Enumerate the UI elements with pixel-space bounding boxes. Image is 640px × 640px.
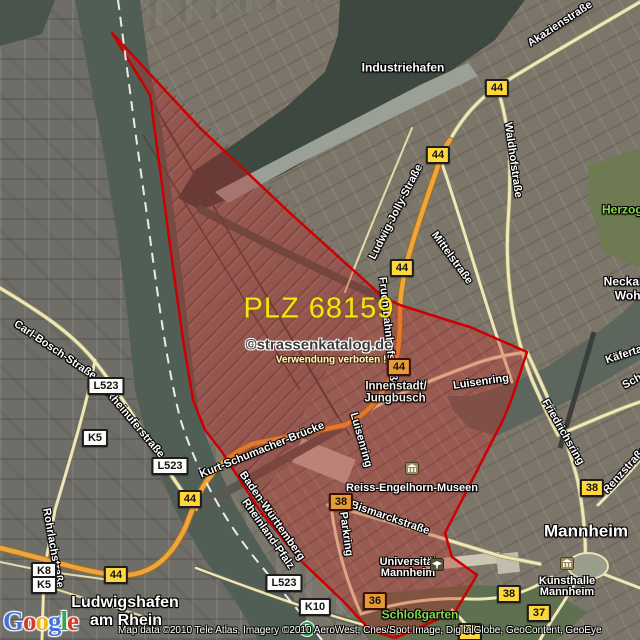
poi-label-reiss-engelhorn-museen: Reiss-Engelhorn-Museen <box>346 482 478 494</box>
place-label-herzogenriedpark: Herzogenriedpark <box>602 203 640 216</box>
city-label-mannheim: Mannheim <box>544 523 628 542</box>
route-badge-44: 44 <box>390 259 414 277</box>
logo-letter: G <box>3 606 23 636</box>
route-badge-44: 44 <box>387 358 411 376</box>
logo-letter: o <box>23 606 36 636</box>
route-badge-l523: L523 <box>151 457 188 475</box>
map-attribution: Map data ©2010 Tele Atlas, Imagery ©2010… <box>118 625 602 636</box>
watermark-line1: ©strassenkatalog.de <box>246 337 393 354</box>
logo-letter: o <box>36 606 49 636</box>
route-badge-k5: K5 <box>82 429 108 447</box>
logo-letter: e <box>67 606 78 636</box>
route-badge-44: 44 <box>178 490 202 508</box>
route-badge-k10: K10 <box>299 598 331 616</box>
route-badge-44: 44 <box>485 79 509 97</box>
route-badge-k5: K5 <box>31 576 57 594</box>
route-badge-44: 44 <box>104 566 128 584</box>
place-label-innenstadt: Innenstadt/ <box>365 381 426 394</box>
museum-icon[interactable] <box>560 557 574 575</box>
place-label-schlossgarten: Schloßgarten <box>382 608 459 621</box>
route-badge-37: 37 <box>527 604 551 622</box>
poi-label-universitaet-2: Mannheim <box>381 567 435 579</box>
place-label-neckarstadt: Neckarstadt <box>604 275 640 288</box>
poi-label-kunsthalle-2: Mannheim <box>540 586 594 598</box>
route-badge-l523: L523 <box>265 574 302 592</box>
route-badge-36: 36 <box>363 592 387 610</box>
logo-letter: g <box>48 606 61 636</box>
plz-title: PLZ 68159 <box>244 293 395 326</box>
watermark-line2: Verwendung verboten ! <box>276 355 387 366</box>
route-badge-38: 38 <box>329 493 353 511</box>
map-canvas[interactable]: Akazienstraße Waldhofstraße Ludwig-Jolly… <box>0 0 640 640</box>
place-label-industriehafen: Industriehafen <box>362 61 445 74</box>
route-badge-l523: L523 <box>87 377 124 395</box>
route-badge-44: 44 <box>426 146 450 164</box>
route-badge-38: 38 <box>497 585 521 603</box>
place-label-wohlgelegen: Wohlgelegen <box>615 289 640 302</box>
place-label-jungbusch: Jungbusch <box>364 393 425 406</box>
university-icon[interactable] <box>430 558 444 576</box>
google-logo[interactable]: Google <box>3 606 78 637</box>
dock-basin <box>0 0 55 46</box>
route-badge-38: 38 <box>580 479 604 497</box>
museum-icon[interactable] <box>405 462 419 480</box>
city-label-ludwigshafen: Ludwigshafen <box>71 594 179 612</box>
